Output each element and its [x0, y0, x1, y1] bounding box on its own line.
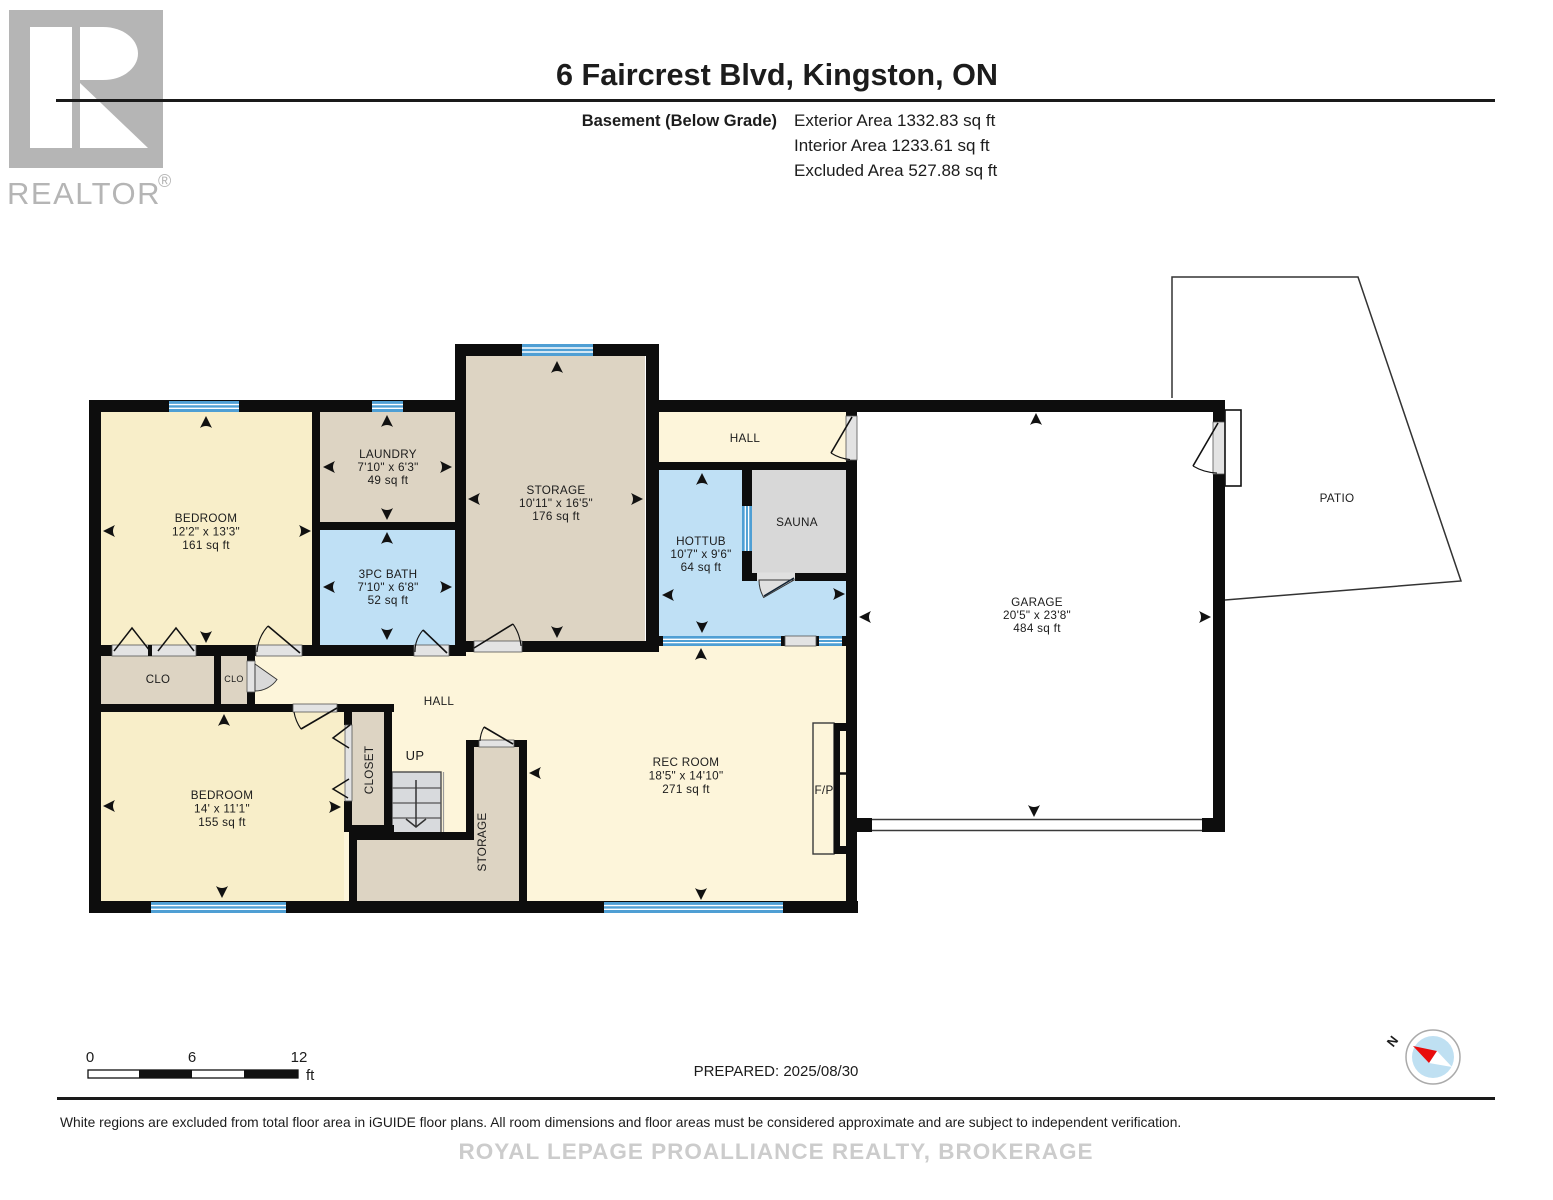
- svg-text:N: N: [1384, 1033, 1402, 1050]
- svg-text:REALTOR: REALTOR: [7, 176, 161, 211]
- svg-text:CLOSET: CLOSET: [363, 746, 376, 795]
- svg-text:Basement (Below Grade): Basement (Below Grade): [582, 112, 777, 130]
- svg-text:ft: ft: [306, 1067, 315, 1084]
- svg-text:BEDROOM14' x 11'1"155 sq ft: BEDROOM14' x 11'1"155 sq ft: [191, 789, 254, 829]
- svg-text:SAUNA: SAUNA: [776, 516, 818, 529]
- svg-text:STORAGE: STORAGE: [476, 812, 489, 871]
- svg-text:Exterior Area 1332.83 sq ft: Exterior Area 1332.83 sq ft: [794, 111, 996, 130]
- svg-text:PREPARED: 2025/08/30: PREPARED: 2025/08/30: [694, 1063, 859, 1080]
- svg-text:ROYAL LEPAGE PROALLIANCE REALT: ROYAL LEPAGE PROALLIANCE REALTY, BROKERA…: [459, 1139, 1094, 1164]
- svg-text:12: 12: [291, 1049, 308, 1066]
- svg-text:HALL: HALL: [424, 695, 455, 708]
- svg-text:0: 0: [86, 1049, 94, 1066]
- svg-text:UP: UP: [406, 748, 425, 763]
- svg-text:GARAGE20'5" x 23'8"484 sq ft: GARAGE20'5" x 23'8"484 sq ft: [1003, 596, 1071, 635]
- svg-text:6: 6: [188, 1049, 196, 1066]
- svg-text:Interior Area 1233.61 sq ft: Interior Area 1233.61 sq ft: [794, 136, 990, 155]
- svg-text:6 Faircrest Blvd, Kingston, ON: 6 Faircrest Blvd, Kingston, ON: [556, 58, 998, 92]
- svg-text:F/P: F/P: [814, 784, 833, 797]
- svg-text:CLO: CLO: [224, 674, 243, 684]
- svg-text:White regions are excluded fro: White regions are excluded from total fl…: [60, 1115, 1181, 1130]
- svg-text:Excluded Area 527.88 sq ft: Excluded Area 527.88 sq ft: [794, 161, 997, 180]
- svg-text:®: ®: [158, 171, 171, 191]
- svg-text:PATIO: PATIO: [1320, 492, 1355, 505]
- svg-text:CLO: CLO: [146, 674, 171, 686]
- svg-text:HALL: HALL: [730, 432, 761, 445]
